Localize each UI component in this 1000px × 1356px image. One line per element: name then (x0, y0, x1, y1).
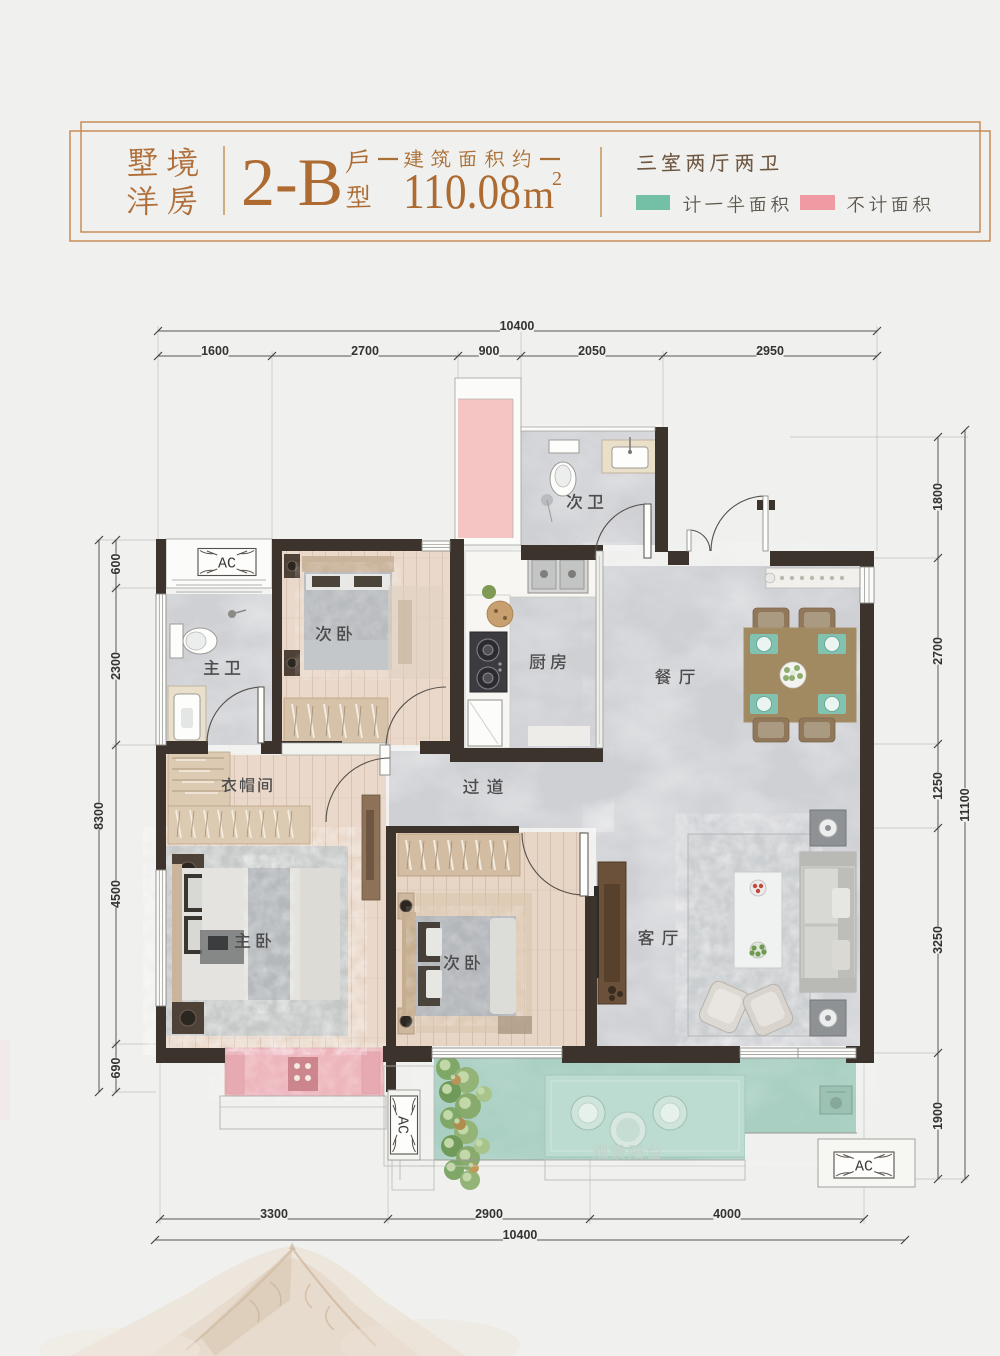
svg-text:4000: 4000 (713, 1207, 741, 1221)
svg-text:3250: 3250 (931, 926, 945, 954)
svg-text:10400: 10400 (503, 1228, 538, 1242)
svg-text:690: 690 (109, 1058, 123, 1079)
svg-text:10400: 10400 (500, 319, 535, 333)
svg-text:11100: 11100 (958, 788, 972, 821)
svg-text:2050: 2050 (578, 344, 606, 358)
svg-text:2: 2 (552, 168, 562, 190)
svg-text:2700: 2700 (931, 637, 945, 665)
svg-text:110.08: 110.08 (403, 163, 521, 219)
svg-text:2700: 2700 (351, 344, 379, 358)
svg-text:m: m (523, 172, 554, 217)
svg-text:900: 900 (479, 344, 500, 358)
svg-text:2950: 2950 (756, 344, 784, 358)
svg-text:8300: 8300 (92, 802, 106, 830)
svg-text:4500: 4500 (109, 880, 123, 908)
svg-text:3300: 3300 (260, 1207, 288, 1221)
svg-text:1600: 1600 (201, 344, 229, 358)
svg-text:1900: 1900 (931, 1102, 945, 1130)
svg-text:AC: AC (394, 1116, 411, 1134)
svg-text:2-B: 2-B (241, 144, 343, 220)
svg-text:2300: 2300 (109, 652, 123, 680)
svg-text:1250: 1250 (931, 772, 945, 800)
svg-text:600: 600 (109, 554, 123, 575)
svg-text:1800: 1800 (931, 483, 945, 511)
svg-text:2900: 2900 (475, 1207, 503, 1221)
svg-text:AC: AC (218, 556, 236, 573)
svg-text:AC: AC (855, 1159, 873, 1176)
